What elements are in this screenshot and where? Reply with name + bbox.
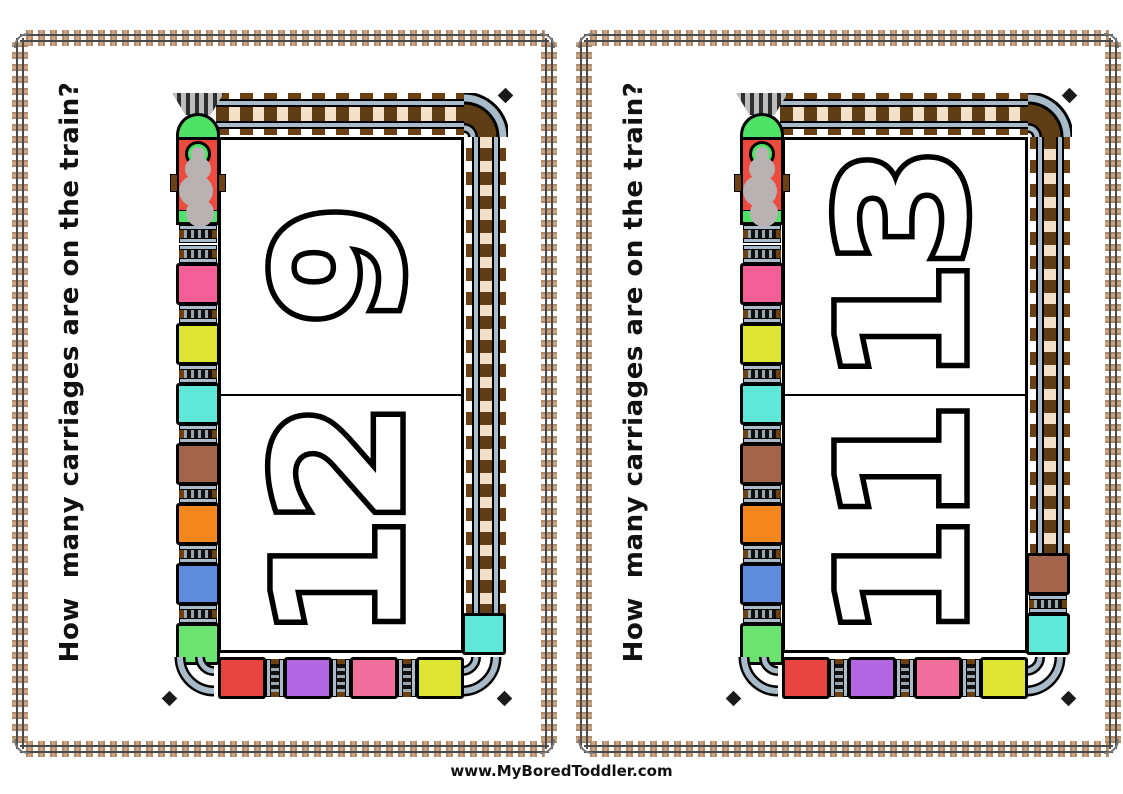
engine-dome (176, 113, 220, 139)
train-right-column (462, 613, 506, 655)
track-corner-bottom-left (170, 655, 214, 701)
train-track-right (466, 137, 506, 617)
train-carriage (740, 563, 784, 605)
question-text: How many carriages are on the train? (619, 72, 659, 672)
card-border-track-bottom (24, 741, 545, 757)
train-carriage (462, 613, 506, 655)
card-border-corner (540, 33, 555, 48)
track-corner-bottom-left (734, 655, 778, 701)
number-cell-top: 13 13 (785, 140, 1025, 396)
card-border-track-left (12, 42, 28, 745)
card-border-corner (14, 33, 29, 48)
engine-wheels (743, 225, 781, 243)
engine-cowcatcher-icon (736, 93, 788, 115)
carriage-coupling (743, 485, 781, 503)
train-right-column (1026, 553, 1070, 655)
card-border-corner (14, 739, 29, 754)
train-carriage (176, 323, 220, 365)
card-border-corner (540, 739, 555, 754)
engine-dome (740, 113, 784, 139)
train-carriage (740, 503, 784, 545)
card-border-corner (1104, 33, 1119, 48)
question-text: How many carriages are on the train? (55, 72, 95, 672)
carriage-coupling (1029, 595, 1067, 613)
train-carriage (176, 563, 220, 605)
train-carriage (176, 443, 220, 485)
worksheet-page: { "page": { "question": "How many carria… (0, 0, 1123, 794)
carriage-coupling (398, 659, 416, 697)
train-illustration: 9 9 12 12 (162, 93, 508, 701)
train-track-top (780, 93, 1028, 135)
card-border-track-left (576, 42, 592, 745)
train-carriage (176, 383, 220, 425)
number-cell-bottom: 11 11 (785, 396, 1025, 650)
train-track-right (1030, 137, 1070, 557)
train-carriage (1026, 553, 1070, 595)
number-cell-top: 9 9 (221, 140, 461, 396)
footer-url: www.MyBoredToddler.com (0, 762, 1123, 780)
number-panel: 9 9 12 12 (218, 137, 464, 653)
smoke-puff-icon (186, 199, 214, 227)
carriage-coupling (179, 605, 217, 623)
train-carriage (782, 657, 830, 699)
engine-cowcatcher-icon (172, 93, 224, 115)
carriage-coupling (179, 425, 217, 443)
engine-wheels (179, 225, 217, 243)
outline-number: 11 11 (818, 407, 993, 639)
carriage-coupling (896, 659, 914, 697)
carriage-coupling (743, 605, 781, 623)
train-left-column (738, 93, 786, 665)
card-border-track-top (24, 30, 545, 46)
train-engine (172, 93, 224, 245)
number-panel: 13 13 11 11 (782, 137, 1028, 653)
carriage-coupling (830, 659, 848, 697)
outline-number: 9 9 (253, 209, 428, 325)
carriage-coupling (179, 245, 217, 263)
carriage-coupling (743, 545, 781, 563)
train-track-top (216, 93, 464, 135)
train-carriage (914, 657, 962, 699)
number-card: How many carriages are on the train? 13 … (576, 30, 1121, 757)
carriage-coupling (179, 485, 217, 503)
carriage-coupling (179, 305, 217, 323)
card-border-track-top (588, 30, 1109, 46)
carriage-coupling (743, 305, 781, 323)
train-carriage (416, 657, 464, 699)
card-border-track-right (1105, 42, 1121, 745)
train-carriage (740, 263, 784, 305)
carriage-coupling (179, 545, 217, 563)
number-card: How many carriages are on the train? 9 9 (12, 30, 557, 757)
train-carriage (740, 323, 784, 365)
card-border-track-right (541, 42, 557, 745)
train-bottom-row (218, 657, 460, 699)
train-carriage (740, 443, 784, 485)
train-left-column (174, 93, 222, 665)
card-border-corner (578, 33, 593, 48)
carriage-coupling (743, 245, 781, 263)
train-carriage (848, 657, 896, 699)
outline-number: 13 13 (818, 151, 993, 383)
train-carriage (176, 503, 220, 545)
carriage-coupling (266, 659, 284, 697)
carriage-coupling (332, 659, 350, 697)
number-cell-bottom: 12 12 (221, 396, 461, 650)
train-carriage (350, 657, 398, 699)
train-illustration: 13 13 11 11 (726, 93, 1072, 701)
card-border-track-bottom (588, 741, 1109, 757)
outline-number: 12 12 (254, 407, 429, 639)
carriage-coupling (179, 365, 217, 383)
train-carriage (284, 657, 332, 699)
train-carriage (176, 263, 220, 305)
carriage-coupling (743, 425, 781, 443)
train-engine (736, 93, 788, 245)
card-border-corner (578, 739, 593, 754)
carriage-coupling (743, 365, 781, 383)
train-bottom-row (782, 657, 1024, 699)
train-carriage (740, 383, 784, 425)
train-carriage (218, 657, 266, 699)
card-border-corner (1104, 739, 1119, 754)
smoke-puff-icon (750, 199, 778, 227)
train-carriage (980, 657, 1028, 699)
carriage-coupling (962, 659, 980, 697)
train-carriage (1026, 613, 1070, 655)
